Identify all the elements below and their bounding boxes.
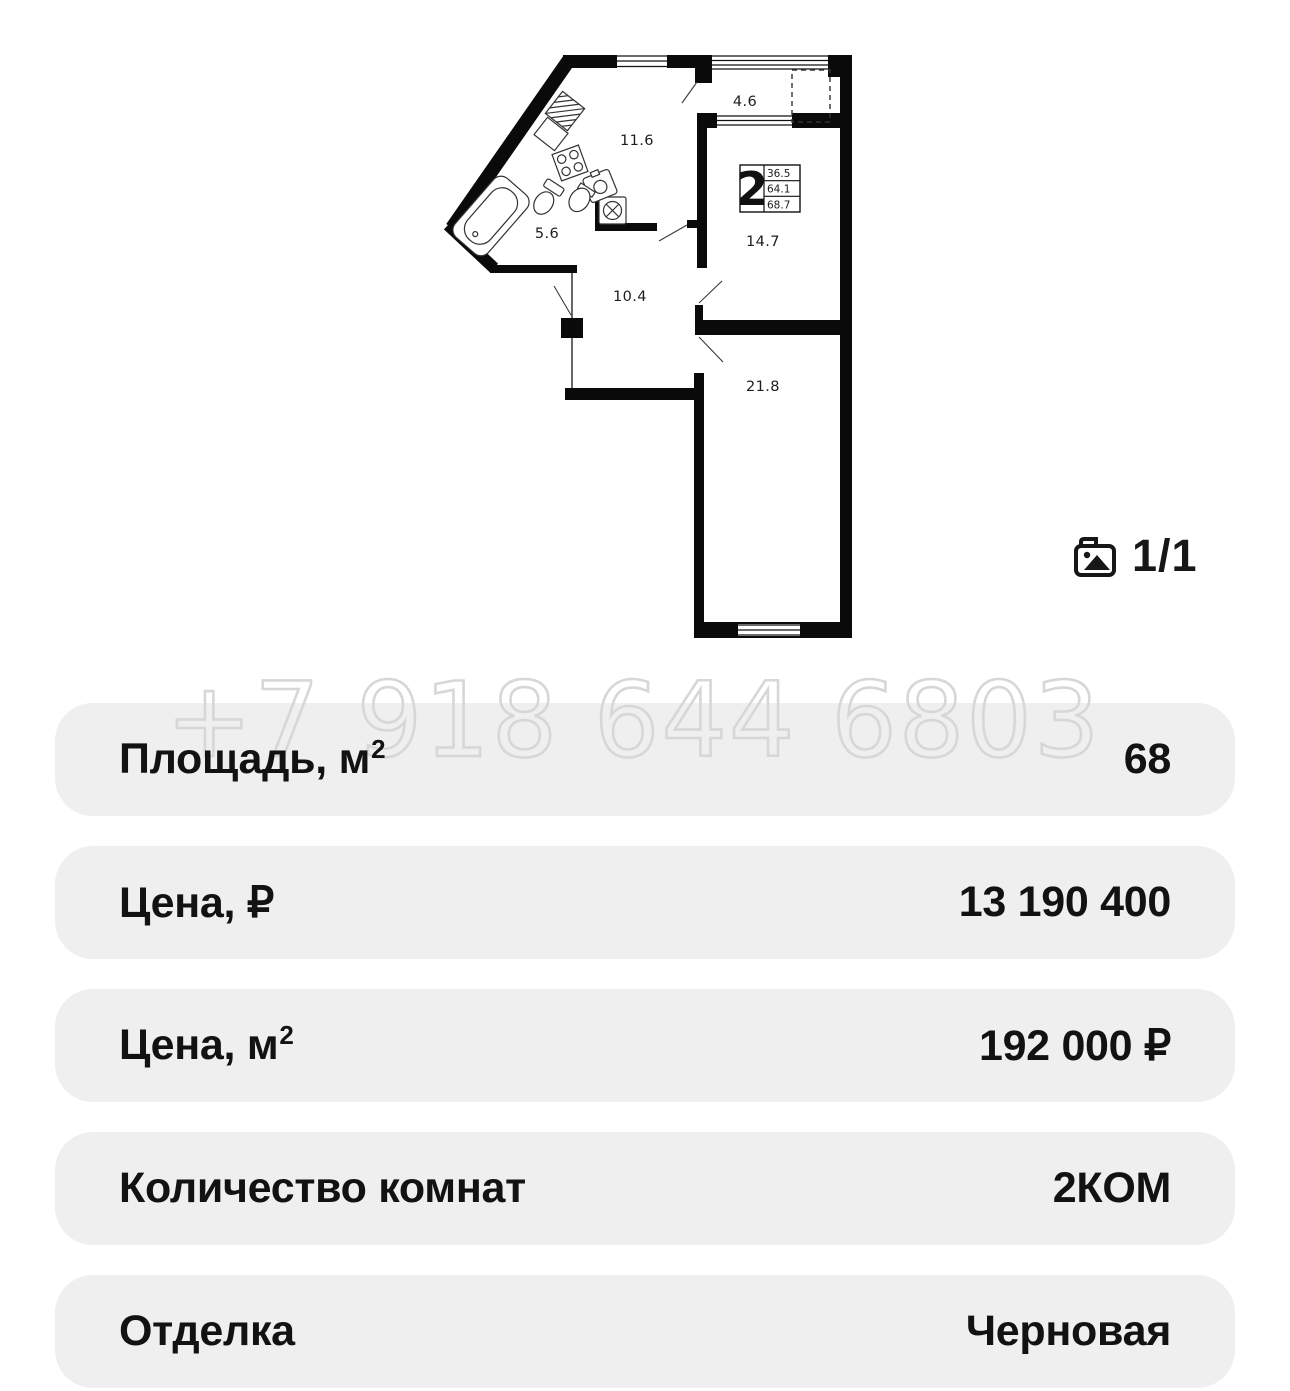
detail-row-area: Площадь, м2 68 [55, 703, 1235, 816]
row-value: 68 [1124, 735, 1171, 784]
toilet-icon [529, 178, 565, 218]
room-label-room-middle: 14.7 [746, 234, 780, 250]
detail-row-price: Цена, ₽ 13 190 400 [55, 846, 1235, 959]
detail-row-price-per-m2: Цена, м2 192 000 ₽ [55, 989, 1235, 1102]
row-label: Цена, ₽ [119, 878, 275, 928]
row-value: 2КОМ [1053, 1164, 1171, 1213]
room-label-room-bottom: 21.8 [746, 379, 780, 395]
row-value: Черновая [966, 1307, 1171, 1356]
unit-info-box: 2 36.5 64.1 68.7 [736, 162, 800, 216]
detail-row-finishing: Отделка Черновая [55, 1275, 1235, 1388]
row-value: 13 190 400 [959, 878, 1171, 927]
photo-counter-label: 1/1 [1132, 530, 1198, 582]
row-label: Цена, м2 [119, 1021, 294, 1070]
row-value: 192 000 ₽ [979, 1021, 1171, 1071]
room-label-balcony: 4.6 [733, 94, 757, 110]
room-label-kitchen: 11.6 [620, 133, 654, 149]
window-room-middle [717, 115, 792, 126]
row-label: Количество комнат [119, 1164, 527, 1213]
details-table: Площадь, м2 68 Цена, ₽ 13 190 400 Цена, … [55, 703, 1235, 1388]
window-kitchen [617, 55, 667, 68]
stove-icon [552, 145, 588, 181]
unit-rooms-number: 2 [736, 162, 768, 216]
floorplan-svg: 2 36.5 64.1 68.7 11.6 4.6 5.6 10.4 14.7 … [430, 35, 855, 650]
floorplan-image[interactable]: 2 36.5 64.1 68.7 11.6 4.6 5.6 10.4 14.7 … [430, 35, 855, 650]
area-living: 36.5 [767, 168, 790, 180]
window-room-bottom [738, 624, 800, 636]
washing-machine-icon [599, 197, 626, 224]
detail-row-rooms: Количество комнат 2КОМ [55, 1132, 1235, 1245]
bathtub-icon [449, 172, 533, 260]
superscript: 2 [279, 1020, 293, 1050]
listing-card: 2 36.5 64.1 68.7 11.6 4.6 5.6 10.4 14.7 … [0, 0, 1290, 1391]
room-label-bathroom: 5.6 [535, 226, 559, 242]
superscript: 2 [371, 734, 385, 764]
area-total: 68.7 [767, 199, 790, 211]
photos-icon [1071, 534, 1119, 578]
row-label: Отделка [119, 1307, 296, 1356]
window-balcony [712, 55, 828, 70]
row-label: Площадь, м2 [119, 735, 385, 784]
area-usable: 64.1 [767, 184, 790, 196]
room-label-hallway: 10.4 [613, 289, 647, 305]
photo-counter[interactable]: 1/1 [1071, 530, 1198, 582]
